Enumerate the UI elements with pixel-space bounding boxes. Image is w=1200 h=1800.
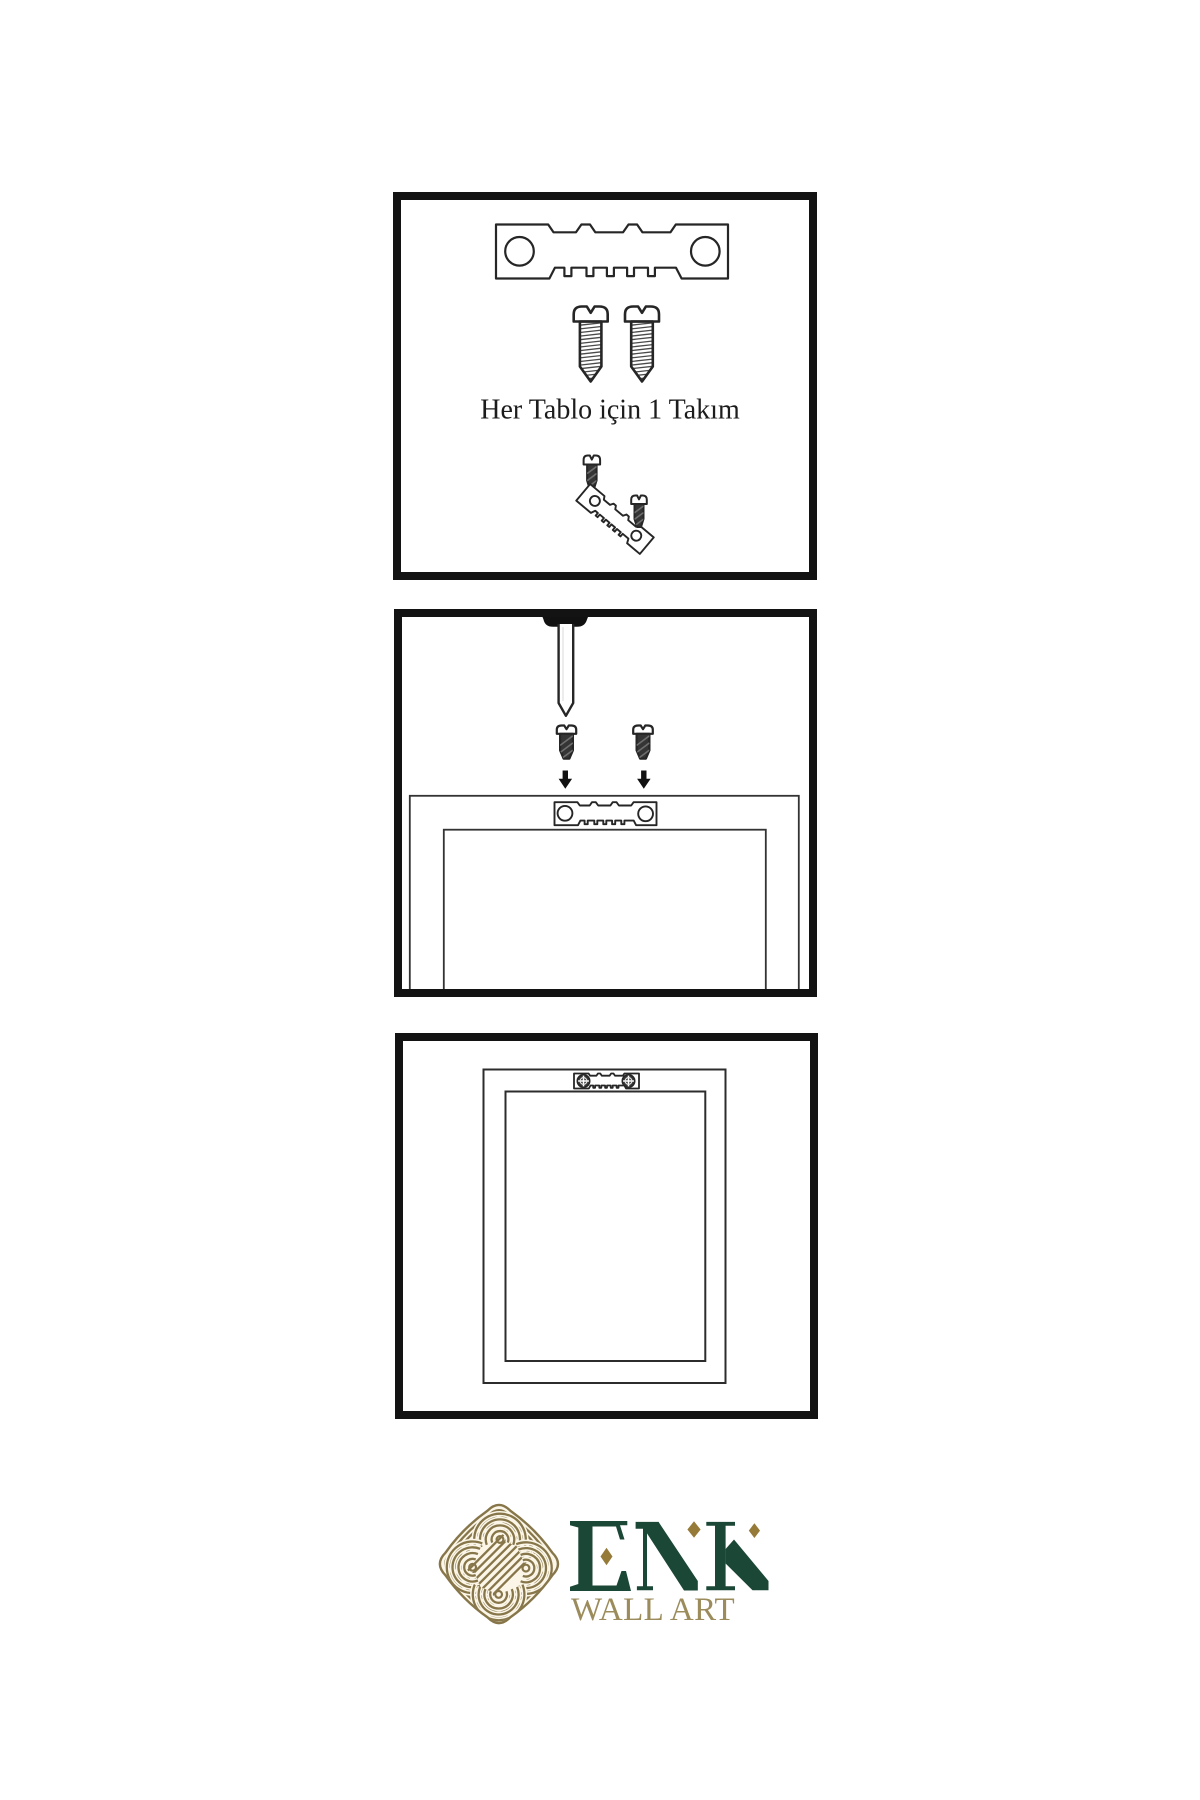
svg-text:Her Tablo için 1 Takım: Her Tablo için 1 Takım <box>480 395 740 426</box>
